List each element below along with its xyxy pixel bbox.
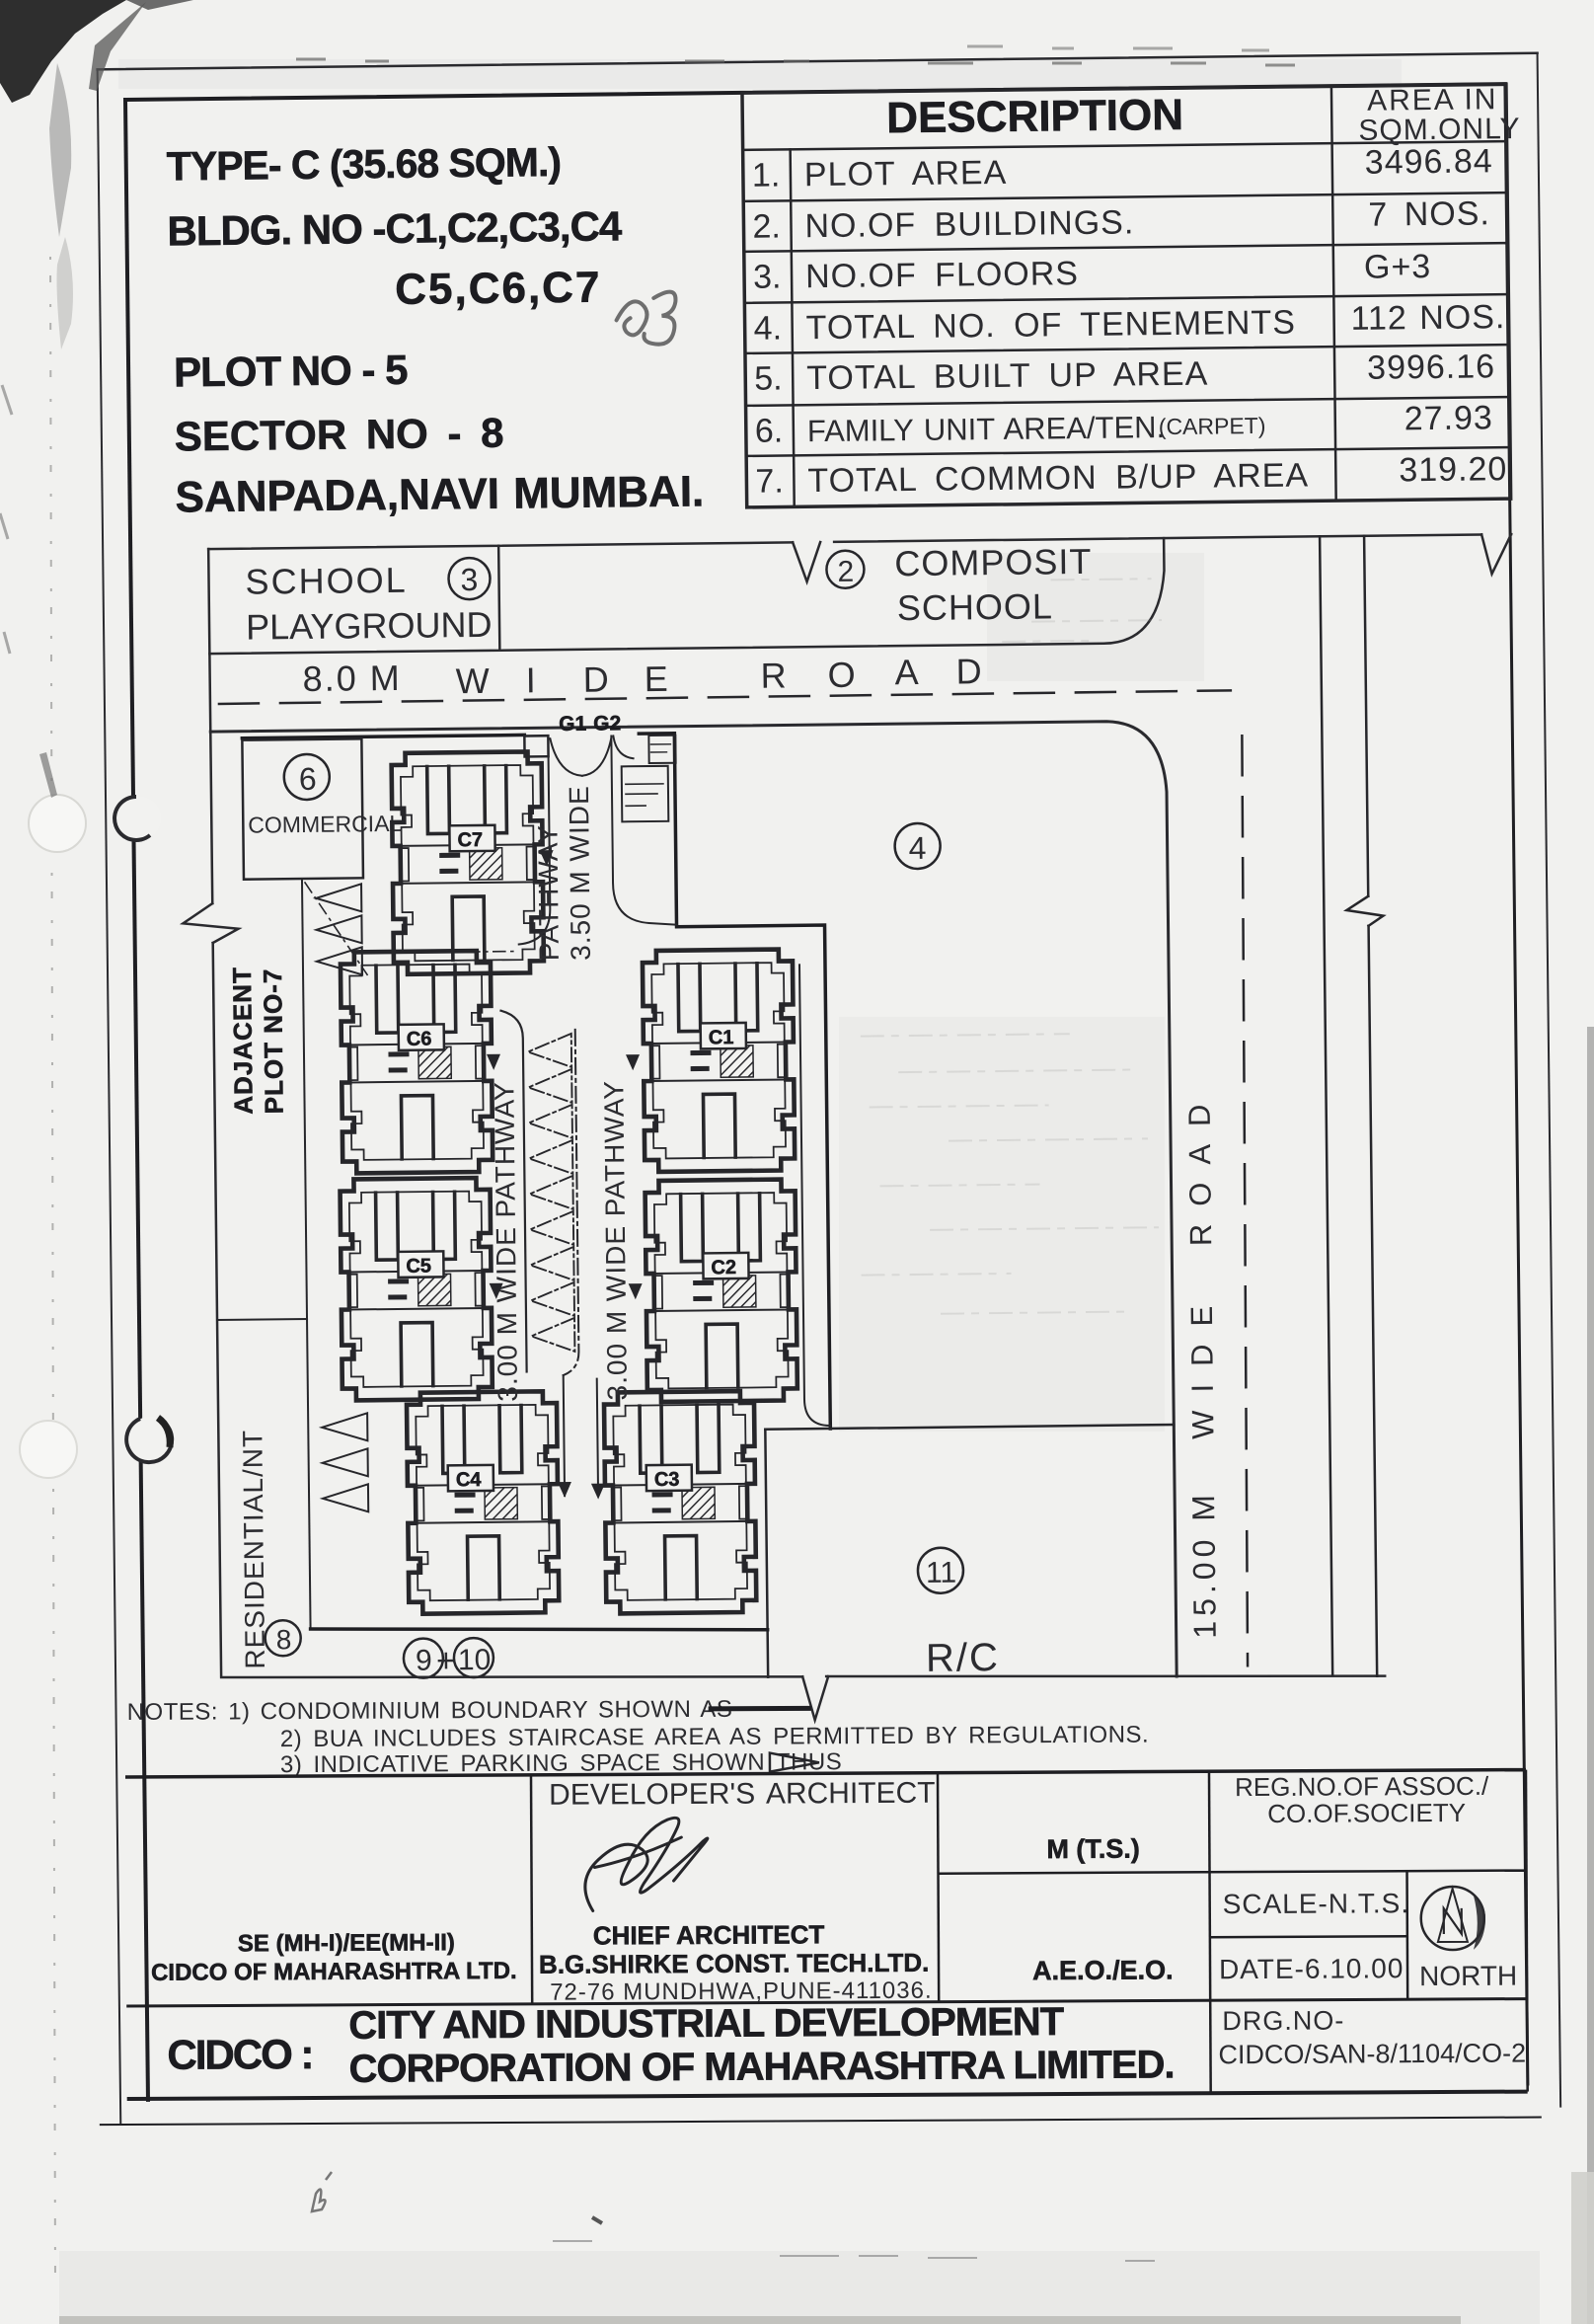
svg-text:6: 6: [299, 761, 317, 797]
svg-text:O: O: [827, 655, 855, 695]
svg-text:4: 4: [908, 830, 926, 866]
svg-text:C4: C4: [456, 1469, 483, 1491]
svg-text:PLOT NO-7: PLOT NO-7: [258, 968, 289, 1115]
svg-text:TOTAL BUILT UP AREA: TOTAL BUILT UP AREA: [806, 355, 1208, 398]
svg-text:DESCRIPTION: DESCRIPTION: [886, 91, 1183, 142]
svg-text:3496.84: 3496.84: [1365, 142, 1493, 181]
svg-text:CORPORATION OF MAHARASHTRA LIM: CORPORATION OF MAHARASHTRA LIMITED.: [348, 2043, 1174, 2090]
svg-text:7 NOS.: 7 NOS.: [1368, 194, 1490, 233]
svg-text:NOTES: 1) CONDOMINIUM BOUNDA: NOTES: 1) CONDOMINIUM BOUNDARY SHOWN AS: [127, 1696, 733, 1726]
svg-text:TOTAL COMMON B/UP AREA: TOTAL COMMON B/UP AREA: [807, 456, 1309, 500]
svg-text:2: 2: [837, 556, 854, 588]
svg-text:D: D: [582, 658, 608, 699]
svg-text:3.00 M WIDE PATHWAY: 3.00 M WIDE PATHWAY: [598, 1080, 633, 1401]
svg-text:6.: 6.: [755, 412, 784, 449]
svg-text:ADJACENT: ADJACENT: [227, 967, 259, 1115]
svg-text:C3: C3: [654, 1469, 680, 1491]
svg-text:I: I: [525, 659, 535, 700]
svg-text:PATHWAY: PATHWAY: [532, 824, 565, 962]
svg-text:3.00 M WIDE PATHWAY: 3.00 M WIDE PATHWAY: [489, 1081, 523, 1402]
svg-text:NORTH: NORTH: [1419, 1961, 1517, 1992]
svg-text:G1: G1: [559, 713, 587, 736]
svg-text:SE (MH-I)/EE(MH-II): SE (MH-I)/EE(MH-II): [238, 1929, 455, 1957]
svg-text:CIDCO :: CIDCO :: [167, 2031, 312, 2078]
svg-text:CIDCO OF MAHARASHTRA LTD.: CIDCO OF MAHARASHTRA LTD.: [151, 1958, 517, 1986]
svg-text:NO.OF BUILDINGS.: NO.OF BUILDINGS.: [804, 203, 1134, 245]
svg-text:CO.OF.SOCIETY: CO.OF.SOCIETY: [1267, 1798, 1466, 1828]
svg-text:3996.16: 3996.16: [1367, 348, 1495, 386]
svg-text:NO.OF FLOORS: NO.OF FLOORS: [805, 255, 1079, 295]
svg-text:PLAYGROUND: PLAYGROUND: [246, 604, 493, 648]
svg-text:C7: C7: [457, 829, 483, 851]
svg-text:TOTAL NO. OF TENEMENTS: TOTAL NO. OF TENEMENTS: [805, 304, 1296, 348]
svg-text:3.50 M WIDE: 3.50 M WIDE: [564, 785, 596, 961]
svg-text:E: E: [644, 658, 667, 699]
svg-text:4.: 4.: [753, 309, 782, 347]
svg-text:C1: C1: [709, 1027, 734, 1048]
svg-text:DATE-6.10.00: DATE-6.10.00: [1219, 1953, 1404, 1984]
svg-text:5.: 5.: [754, 359, 783, 397]
svg-text:R/C: R/C: [926, 1636, 1000, 1680]
svg-text:COMPOSIT: COMPOSIT: [894, 541, 1092, 583]
svg-text:SECTOR NO - 8: SECTOR NO - 8: [175, 410, 504, 460]
svg-text:CHIEF ARCHITECT: CHIEF ARCHITECT: [593, 1919, 825, 1950]
svg-text:15.00 M: 15.00 M: [1185, 1490, 1223, 1639]
svg-text:11: 11: [926, 1557, 957, 1589]
svg-text:8.0 M: 8.0 M: [302, 658, 402, 699]
svg-text:2.: 2.: [752, 207, 781, 245]
svg-text:B.G.SHIRKE CONST. TECH.LTD.: B.G.SHIRKE CONST. TECH.LTD.: [539, 1948, 929, 1979]
svg-text:R: R: [760, 655, 786, 695]
svg-text:C2: C2: [711, 1257, 736, 1278]
svg-text:COMMERCIAL: COMMERCIAL: [248, 811, 402, 838]
svg-text:C5,C6,C7: C5,C6,C7: [395, 264, 602, 314]
svg-text:2) BUA INCLUDES STAIRCASE: 2) BUA INCLUDES STAIRCASE AREA AS PERMIT…: [280, 1722, 1150, 1753]
svg-text:3.: 3.: [753, 258, 782, 295]
svg-text:SCALE-N.T.S.: SCALE-N.T.S.: [1223, 1888, 1410, 1919]
svg-text:A.E.O./E.O.: A.E.O./E.O.: [1032, 1955, 1174, 1985]
svg-text:1.: 1.: [752, 156, 781, 194]
svg-text:SANPADA,NAVI MUMBAI.: SANPADA,NAVI MUMBAI.: [175, 467, 704, 521]
svg-text:D: D: [955, 651, 981, 691]
svg-text:W: W: [455, 660, 489, 701]
svg-text:C6: C6: [407, 1029, 432, 1050]
svg-text:112 NOS.: 112 NOS.: [1350, 298, 1505, 338]
svg-text:(CARPET): (CARPET): [1159, 413, 1266, 439]
svg-text:3: 3: [460, 562, 478, 597]
svg-text:PLOT NO - 5: PLOT NO - 5: [174, 347, 409, 396]
svg-text:27.93: 27.93: [1404, 399, 1494, 437]
svg-text:9: 9: [416, 1645, 432, 1677]
svg-text:DEVELOPER'S ARCHITECT: DEVELOPER'S ARCHITECT: [549, 1777, 936, 1812]
svg-text:8: 8: [276, 1624, 292, 1655]
svg-text:TYPE- C (35.68 SQM.): TYPE- C (35.68 SQM.): [167, 139, 562, 190]
svg-text:FAMILY UNIT AREA/TEN.: FAMILY UNIT AREA/TEN.: [807, 410, 1166, 448]
svg-text:WIDE ROAD: WIDE ROAD: [1181, 1086, 1220, 1438]
svg-text:SCHOOL: SCHOOL: [897, 585, 1054, 628]
svg-text:C5: C5: [406, 1256, 431, 1278]
svg-text:DRG.NO-: DRG.NO-: [1222, 2006, 1344, 2037]
svg-text:G+3: G+3: [1364, 248, 1432, 286]
svg-text:BLDG. NO -C1,C2,C3,C4: BLDG. NO -C1,C2,C3,C4: [167, 202, 623, 254]
svg-text:PLOT AREA: PLOT AREA: [804, 154, 1008, 194]
svg-text:CITY AND INDUSTRIAL DEVELOPMEN: CITY AND INDUSTRIAL DEVELOPMENT: [348, 2000, 1064, 2048]
svg-text:319.20: 319.20: [1399, 450, 1507, 489]
svg-text:A: A: [894, 652, 918, 692]
svg-text:M (T.S.): M (T.S.): [1046, 1834, 1140, 1864]
svg-text:G2: G2: [593, 712, 621, 735]
svg-text:SCHOOL: SCHOOL: [245, 560, 408, 602]
svg-text:10: 10: [458, 1644, 492, 1676]
svg-text:CIDCO/SAN-8/1104/CO-2: CIDCO/SAN-8/1104/CO-2: [1218, 2039, 1526, 2070]
svg-text:7.: 7.: [755, 462, 784, 500]
svg-text:SQM.ONLY: SQM.ONLY: [1358, 113, 1521, 147]
